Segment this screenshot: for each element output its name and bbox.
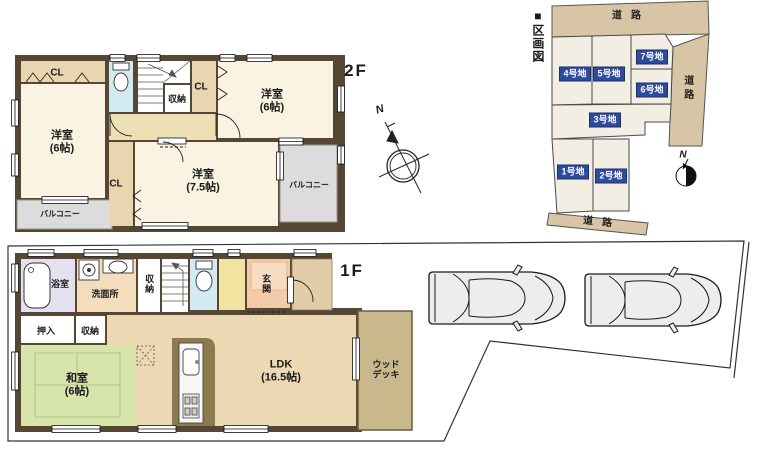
toilet-icon-1f: [196, 261, 212, 291]
floor-plan-page: CL 洋室 (6帖) バルコニー 収納 CL 洋室 (6帖) 洋室 (7.5帖)…: [0, 0, 771, 453]
oshiire: [21, 316, 74, 343]
compass-plot: [676, 159, 696, 186]
room-south: [135, 142, 278, 226]
genkan-tile: [251, 262, 287, 290]
storage-2f: [165, 85, 190, 112]
bathtub: [24, 263, 50, 308]
toilet-icon-2f: [113, 63, 129, 91]
stairs-2f: [138, 61, 163, 112]
ldk: [107, 315, 356, 426]
road-bottom: [547, 213, 648, 235]
storage-tatami: [76, 316, 105, 343]
car-1: [429, 265, 565, 331]
washer-icon: [79, 260, 99, 280]
plot-map: [547, 1, 709, 235]
lot-4-badge: 4号地: [559, 67, 591, 82]
compass-2f: [379, 122, 429, 193]
kitchen-faucet: [195, 360, 199, 364]
balcony-sw: [17, 200, 112, 229]
hall-2f: [109, 114, 216, 140]
lot-7-badge: 7号地: [636, 50, 668, 65]
kitchen-stove: [183, 394, 199, 418]
floor-plan-graphics: [0, 0, 771, 453]
floor2-plan: [12, 55, 430, 233]
lot-6-badge: 6号地: [636, 83, 668, 98]
lot-2-badge: 2号地: [595, 169, 627, 184]
lot-1-badge: 1号地: [557, 165, 589, 180]
sink-icon: [103, 259, 133, 273]
road-right: [669, 34, 709, 146]
closet-mid: [192, 61, 216, 112]
lot-5-badge: 5号地: [593, 67, 625, 82]
porch: [292, 259, 332, 310]
closet-south: [109, 142, 133, 226]
car-2: [585, 267, 721, 333]
hall-1f: [219, 259, 245, 310]
balcony-se: [280, 145, 337, 222]
lot-3-badge: 3号地: [589, 113, 621, 128]
wood-deck: [358, 311, 412, 430]
room-west: [21, 84, 105, 198]
storage-hall-1f: [138, 259, 160, 312]
road-top: [552, 1, 709, 37]
room-east: [218, 61, 333, 138]
closet-west: [21, 61, 105, 82]
